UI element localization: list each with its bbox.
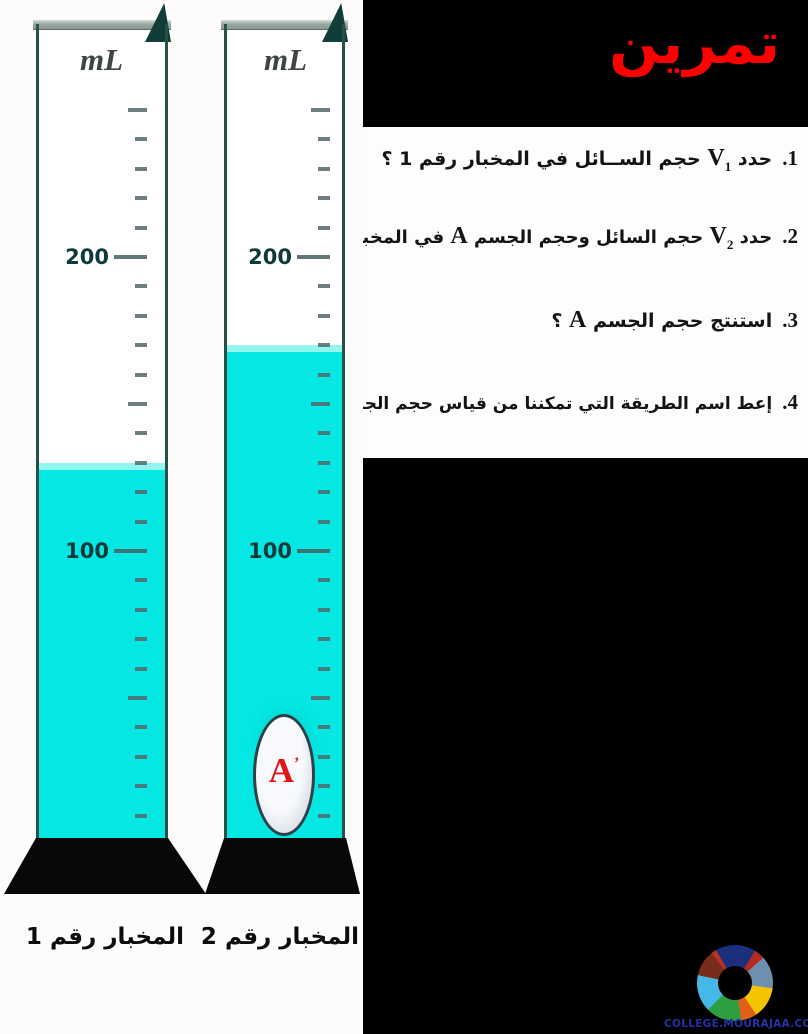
exercise-title: تمرين	[609, 0, 780, 86]
scale-tick	[318, 490, 330, 494]
scale-tick	[135, 461, 147, 465]
questions-box: 1.حدد V1 حجم الســائل في المخبار رقم 1 ؟…	[363, 127, 808, 458]
object-a-label: A’	[256, 751, 312, 791]
scale-tick	[318, 755, 330, 759]
scale-tick	[311, 108, 330, 112]
measuring-cylinder-1: mL 200100	[36, 0, 168, 900]
scale-tick	[318, 814, 330, 818]
scale-tick	[297, 255, 330, 259]
cylinder-base	[205, 838, 360, 894]
scale-tick	[318, 578, 330, 582]
scale-tick	[318, 608, 330, 612]
scale-tick	[135, 784, 147, 788]
scale-tick	[135, 373, 147, 377]
measuring-cylinder-2: mL 200100 A’	[224, 0, 345, 900]
scale-tick	[135, 314, 147, 318]
scale-tick	[318, 284, 330, 288]
scale-label: 100	[248, 540, 292, 562]
cylinder-caption: المخبار رقم 2	[198, 924, 362, 950]
scale-tick	[318, 667, 330, 671]
question-4: 4.إعط اسم الطريقة التي تمكننا من قياس حج…	[365, 389, 798, 419]
logo-hole	[718, 966, 752, 1000]
scale-tick	[318, 431, 330, 435]
scale-tick	[128, 108, 147, 112]
scale-tick	[318, 784, 330, 788]
cylinder-base	[4, 838, 206, 894]
scale-tick	[318, 314, 330, 318]
scale-tick	[135, 167, 147, 171]
scale-tick	[318, 725, 330, 729]
question-number: 3.	[782, 308, 798, 332]
scale-tick	[297, 549, 330, 553]
scale-tick	[318, 167, 330, 171]
scale-tick	[114, 549, 147, 553]
scale-tick	[135, 637, 147, 641]
scale-tick	[318, 343, 330, 347]
college-mourajaa-logo	[697, 945, 773, 1021]
scale-tick	[318, 461, 330, 465]
scale-label: 200	[65, 246, 109, 268]
question-3: 3.استنتج حجم الجسم A ؟	[365, 307, 798, 337]
scale-tick	[135, 196, 147, 200]
question-number: 2.	[782, 224, 798, 248]
scale-tick	[318, 520, 330, 524]
scale-tick	[135, 343, 147, 347]
worksheet: mL 200100 mL 200100 A’ المخبار رقم 1 الم…	[0, 0, 808, 1034]
scale-tick	[318, 637, 330, 641]
scale-tick	[135, 520, 147, 524]
scale-tick	[135, 284, 147, 288]
scale-tick	[128, 696, 147, 700]
scale-tick	[311, 696, 330, 700]
scale-tick	[128, 402, 147, 406]
question-number: 4.	[782, 390, 798, 414]
cylinder-caption: المخبار رقم 1	[20, 924, 190, 950]
scale-tick	[135, 431, 147, 435]
scale-tick	[135, 725, 147, 729]
logo-caption: COLLEGE.MOURAJAA.COM	[664, 1018, 806, 1030]
scale-tick	[114, 255, 147, 259]
scale-tick	[318, 137, 330, 141]
scale-tick	[135, 578, 147, 582]
scale-tick	[318, 373, 330, 377]
object-a: A’	[253, 714, 315, 836]
scale-tick	[135, 608, 147, 612]
scale-tick	[135, 226, 147, 230]
scale-tick	[311, 402, 330, 406]
scale-tick	[135, 814, 147, 818]
scale-tick	[318, 226, 330, 230]
scale-tick	[135, 755, 147, 759]
question-1: 1.حدد V1 حجم الســائل في المخبار رقم 1 ؟	[365, 145, 798, 175]
question-2: 2.حدد V2 حجم السائل وحجم الجسم A في المخ…	[365, 223, 798, 253]
scale-tick	[135, 490, 147, 494]
question-number: 1.	[782, 146, 798, 170]
graduation-scale: 200100	[36, 0, 168, 900]
scale-tick	[135, 667, 147, 671]
scale-label: 100	[65, 540, 109, 562]
exercise-panel: تمرين 1.حدد V1 حجم الســائل في المخبار ر…	[363, 0, 808, 1034]
scale-label: 200	[248, 246, 292, 268]
scale-tick	[318, 196, 330, 200]
scale-tick	[135, 137, 147, 141]
